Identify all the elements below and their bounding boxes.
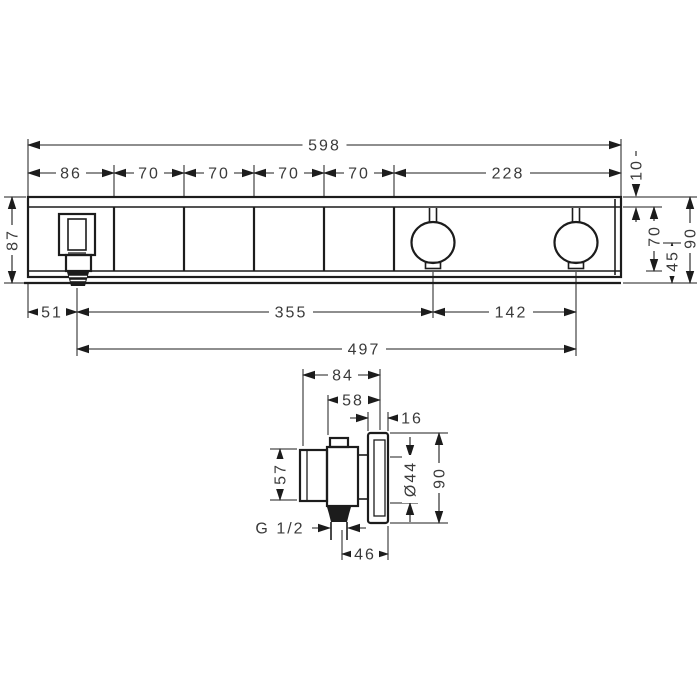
dim-70-right-label: 70: [646, 221, 664, 251]
dim-70-label-2: 70: [204, 165, 234, 183]
dim-90-side-label: 90: [431, 463, 449, 493]
dim-diameter-44-label: Ø44: [402, 455, 420, 503]
svg-text:497: 497: [348, 342, 381, 359]
svg-text:51: 51: [41, 305, 63, 322]
dim-58-label: 58: [338, 392, 368, 410]
svg-text:45: 45: [665, 250, 682, 272]
thermostat-knob-1: [412, 208, 455, 269]
dim-87-label: 87: [4, 225, 22, 255]
body-top-step: [330, 438, 348, 447]
dim-10-label: 10: [628, 156, 646, 184]
dim-16-label: 16: [398, 410, 425, 428]
svg-text:70: 70: [348, 166, 370, 183]
dim-142-label: 142: [489, 304, 533, 322]
wall-body-block: [300, 450, 327, 501]
svg-text:46: 46: [354, 547, 376, 564]
svg-text:Ø44: Ø44: [403, 461, 420, 497]
side-view-drawing: 84 58 16 57 Ø44 90 G 1/2 46: [250, 367, 449, 564]
dim-51-label: 51: [38, 304, 66, 322]
dim-86-label: 86: [56, 165, 86, 183]
svg-text:70: 70: [138, 166, 160, 183]
dim-598-label: 598: [303, 137, 347, 155]
technical-drawing-page: 598 86 70 70 70 70 228 10: [0, 0, 700, 700]
dim-90-right-label: 90: [682, 223, 700, 253]
svg-text:84: 84: [332, 368, 354, 385]
dim-497-label: 497: [342, 341, 386, 359]
svg-text:G 1/2: G 1/2: [255, 521, 304, 538]
svg-text:598: 598: [308, 138, 341, 155]
threaded-connector-black: [327, 507, 351, 522]
shutoff-handle: [59, 214, 95, 286]
svg-text:87: 87: [5, 229, 22, 251]
svg-text:70: 70: [208, 166, 230, 183]
svg-text:58: 58: [342, 393, 364, 410]
dim-228-label: 228: [486, 165, 530, 183]
svg-text:70: 70: [278, 166, 300, 183]
svg-text:86: 86: [60, 166, 82, 183]
thermostat-knob-2: [555, 208, 598, 269]
module-divider-lines: [114, 207, 394, 271]
dim-45-label: 45: [664, 246, 682, 276]
svg-text:70: 70: [647, 225, 664, 247]
dim-46-label: 46: [351, 546, 379, 564]
svg-text:10: 10: [629, 159, 646, 181]
svg-text:228: 228: [492, 166, 525, 183]
escutcheon-inner-lip: [374, 440, 385, 516]
dim-355-label: 355: [269, 304, 313, 322]
dim-70-label-3: 70: [274, 165, 304, 183]
dim-84-label: 84: [328, 367, 358, 385]
svg-text:142: 142: [495, 305, 528, 322]
valve-body: [327, 447, 358, 506]
svg-text:90: 90: [683, 227, 700, 249]
dim-70-label-1: 70: [134, 165, 164, 183]
dimension-drawing: 598 86 70 70 70 70 228 10: [0, 0, 700, 700]
dim-57-label: 57: [272, 459, 290, 489]
cartridge-sleeve: [358, 455, 368, 499]
svg-text:57: 57: [273, 463, 290, 485]
svg-text:16: 16: [401, 411, 423, 428]
dim-70-label-4: 70: [344, 165, 374, 183]
thread-size-label: G 1/2: [250, 520, 310, 538]
svg-text:90: 90: [432, 467, 449, 489]
svg-text:355: 355: [275, 305, 308, 322]
front-view-drawing: 598 86 70 70 70 70 228 10: [4, 137, 700, 359]
